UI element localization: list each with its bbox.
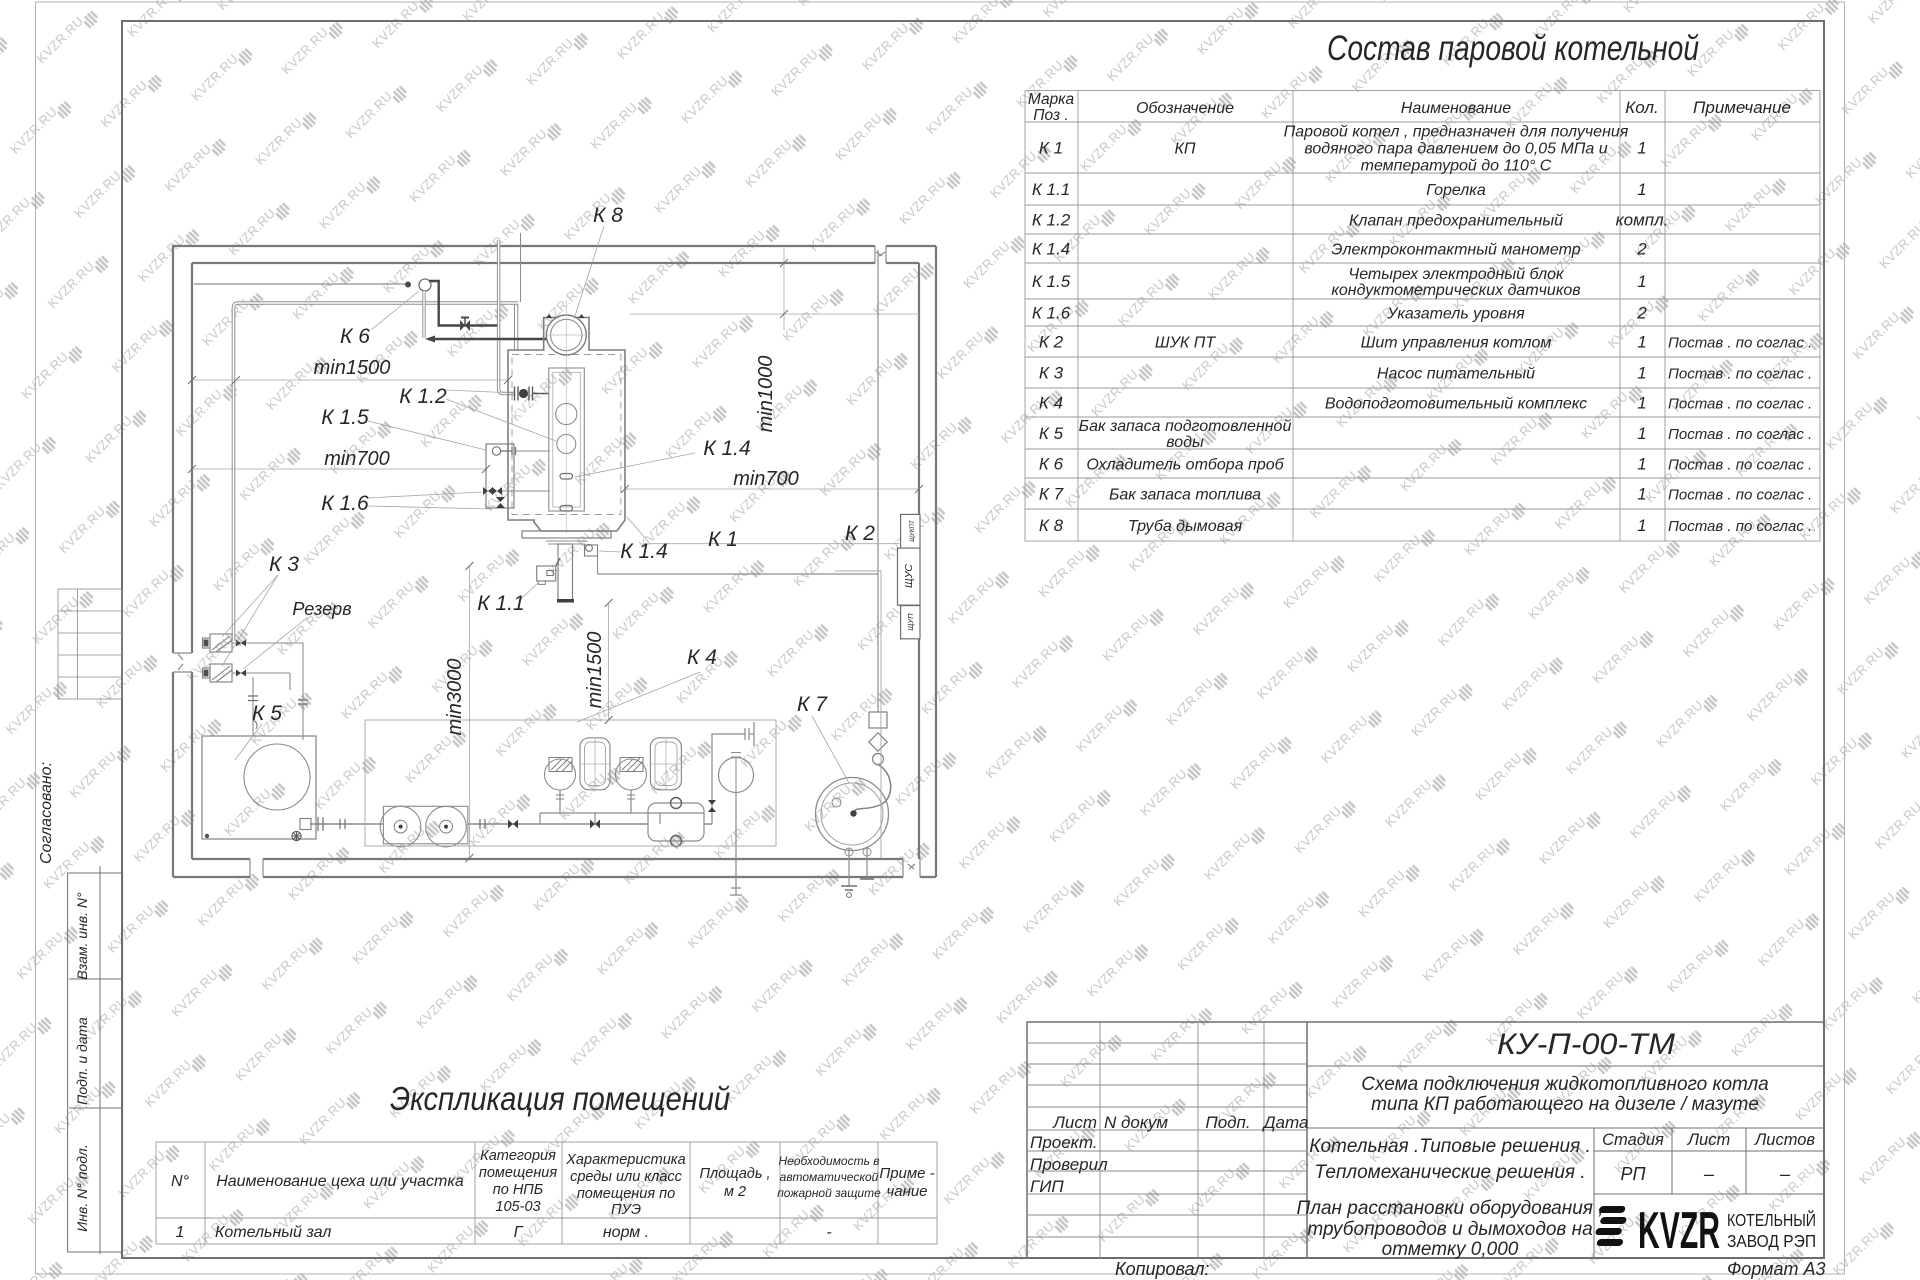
svg-text:Обозначение: Обозначение	[1136, 100, 1234, 117]
svg-text:2: 2	[1636, 240, 1647, 259]
svg-text:м 2: м 2	[724, 1184, 746, 1200]
svg-text:Экспликация помещений: Экспликация помещений	[390, 1080, 730, 1117]
svg-text:Согласовано:: Согласовано:	[38, 762, 55, 864]
svg-text:Бак запаса топлива: Бак запаса топлива	[1109, 487, 1261, 504]
svg-text:К 1.2: К 1.2	[1032, 211, 1071, 230]
svg-text:К 5: К 5	[1039, 424, 1064, 443]
svg-text:ЩУП: ЩУП	[906, 613, 915, 631]
svg-text:К 1.1: К 1.1	[477, 592, 524, 615]
svg-text:К 7: К 7	[797, 693, 828, 716]
svg-text:Котельный зал: Котельный зал	[215, 1224, 331, 1241]
svg-text:Кол.: Кол.	[1625, 98, 1658, 117]
svg-text:Постав . по соглас .: Постав . по соглас .	[1668, 335, 1812, 352]
svg-text:1: 1	[1637, 272, 1646, 291]
svg-text:1: 1	[1637, 485, 1646, 504]
svg-text:Паровой котел , предназначен д: Паровой котел , предназначен для получен…	[1284, 124, 1629, 141]
svg-text:Указатель уровня: Указатель уровня	[1386, 306, 1525, 323]
svg-text:-: -	[826, 1224, 831, 1241]
svg-text:помещения по: помещения по	[577, 1186, 675, 1202]
svg-text:Четырех электродный блок: Четырех электродный блок	[1348, 266, 1565, 283]
svg-text:норм .: норм .	[603, 1224, 649, 1241]
svg-text:компл.: компл.	[1616, 211, 1669, 230]
svg-text:min1500: min1500	[314, 357, 391, 379]
svg-text:Марка: Марка	[1028, 91, 1075, 108]
svg-text:отметку 0,000: отметку 0,000	[1382, 1239, 1519, 1260]
svg-text:Тепломеханические решения .: Тепломеханические решения .	[1314, 1162, 1585, 1183]
svg-text:Необходимость в: Необходимость в	[778, 1154, 879, 1168]
svg-text:К 1: К 1	[708, 528, 738, 551]
svg-text:К 6: К 6	[340, 325, 370, 348]
svg-text:среды или класс: среды или класс	[570, 1169, 683, 1185]
svg-text:К 1.4: К 1.4	[1032, 240, 1070, 259]
svg-text:Листов: Листов	[1754, 1131, 1815, 1149]
svg-text:К 1.4: К 1.4	[703, 437, 750, 460]
svg-text:Наименование цеха или участка: Наименование цеха или участка	[216, 1173, 464, 1190]
svg-text:К 1.5: К 1.5	[1032, 272, 1071, 291]
svg-text:Горелка: Горелка	[1426, 182, 1486, 199]
svg-text:1: 1	[1637, 180, 1646, 199]
svg-text:Стадия: Стадия	[1602, 1131, 1664, 1149]
svg-text:К 1.4: К 1.4	[620, 540, 667, 563]
svg-text:Схема подключения жидкотопливн: Схема подключения жидкотопливного котла	[1361, 1074, 1769, 1095]
svg-text:КП: КП	[1174, 141, 1195, 158]
svg-text:РП: РП	[1620, 1164, 1646, 1184]
svg-text:min700: min700	[324, 448, 390, 470]
svg-text:Лист: Лист	[1052, 1113, 1097, 1132]
svg-text:Постав . по соглас .: Постав . по соглас .	[1668, 457, 1812, 474]
svg-text:КОТЕЛЬНЫЙ: КОТЕЛЬНЫЙ	[1727, 1209, 1816, 1230]
svg-text:ЗАВОД РЭП: ЗАВОД РЭП	[1727, 1231, 1816, 1251]
svg-text:Состав паровой котельной: Состав паровой котельной	[1327, 29, 1699, 68]
svg-text:К 3: К 3	[1039, 364, 1064, 383]
svg-text:N°: N°	[171, 1173, 190, 1190]
svg-text:кондуктометрических датчиков: кондуктометрических датчиков	[1331, 282, 1580, 299]
svg-text:Проект.: Проект.	[1030, 1133, 1098, 1152]
svg-text:2: 2	[1636, 304, 1647, 323]
svg-text:Примечание: Примечание	[1693, 98, 1791, 117]
svg-text:Приме -: Приме -	[879, 1165, 934, 1182]
svg-text:ШУК ПТ: ШУК ПТ	[1155, 335, 1216, 352]
svg-text:К 1.5: К 1.5	[321, 406, 369, 429]
svg-text:температурой до 110° С: температурой до 110° С	[1361, 158, 1552, 175]
svg-text:К 4: К 4	[687, 646, 717, 669]
svg-text:Наименование: Наименование	[1401, 100, 1512, 117]
svg-text:К 7: К 7	[1039, 485, 1064, 504]
svg-text:1: 1	[1637, 516, 1646, 535]
svg-text:1: 1	[1637, 139, 1646, 158]
svg-text:чание: чание	[886, 1183, 927, 1200]
svg-text:ГИП: ГИП	[1030, 1177, 1064, 1196]
svg-text:Клапан предохранительный: Клапан предохранительный	[1349, 213, 1563, 230]
svg-text:К 2: К 2	[1039, 333, 1064, 352]
svg-text:План расстановки оборудования: План расстановки оборудования ,	[1297, 1198, 1604, 1219]
svg-text:1: 1	[1637, 455, 1646, 474]
svg-text:К 8: К 8	[593, 204, 623, 227]
svg-text:ЩУС: ЩУС	[903, 564, 915, 588]
svg-text:Копировал:: Копировал:	[1115, 1259, 1210, 1279]
svg-text:Г: Г	[514, 1224, 524, 1241]
svg-text:Бак запаса подготовленной: Бак запаса подготовленной	[1079, 418, 1292, 435]
svg-text:К 1.2: К 1.2	[399, 385, 447, 408]
svg-text:1: 1	[176, 1224, 185, 1241]
svg-text:Постав . по соглас .: Постав . по соглас .	[1668, 396, 1812, 413]
svg-text:К 1.1: К 1.1	[1032, 180, 1070, 199]
svg-text:Площадь ,: Площадь ,	[699, 1166, 770, 1182]
svg-text:Подп. и дата: Подп. и дата	[74, 1017, 90, 1105]
svg-text:Взам. инв. N°: Взам. инв. N°	[74, 892, 90, 980]
svg-text:ПУЭ: ПУЭ	[611, 1202, 641, 1218]
svg-text:Резерв: Резерв	[292, 599, 351, 619]
svg-text:воды: воды	[1166, 434, 1204, 451]
svg-text:К 5: К 5	[252, 702, 282, 725]
svg-text:водяного пара давлением до 0,: водяного пара давлением до 0,05 МПа и	[1304, 141, 1607, 158]
svg-text:1: 1	[1637, 424, 1646, 443]
svg-text:Подп.: Подп.	[1205, 1113, 1250, 1132]
svg-text:ЩУКПТ: ЩУКПТ	[909, 519, 916, 542]
svg-text:Проверил: Проверил	[1030, 1155, 1108, 1174]
svg-text:–: –	[1703, 1164, 1715, 1184]
svg-text:–: –	[1779, 1164, 1791, 1184]
svg-text:К 1: К 1	[1039, 139, 1063, 158]
svg-text:К 2: К 2	[845, 522, 875, 545]
svg-text:Котельная .Типовые решения .: Котельная .Типовые решения .	[1309, 1136, 1590, 1157]
svg-text:min1500: min1500	[584, 632, 606, 709]
svg-text:помещения: помещения	[479, 1165, 557, 1181]
svg-text:Поз .: Поз .	[1033, 107, 1069, 124]
svg-text:Лист: Лист	[1687, 1131, 1730, 1149]
svg-text:пожарной защите: пожарной защите	[777, 1186, 881, 1200]
svg-text:К 3: К 3	[269, 553, 299, 576]
svg-text:Инв. N° подл.: Инв. N° подл.	[74, 1144, 90, 1231]
svg-text:К 1.6: К 1.6	[321, 492, 369, 515]
svg-text:Шит управления котлом: Шит управления котлом	[1361, 335, 1552, 352]
svg-text:Электроконтактный манометр: Электроконтактный манометр	[1331, 242, 1580, 259]
svg-text:Труба дымовая: Труба дымовая	[1128, 518, 1243, 535]
svg-text:Постав . по соглас .: Постав . по соглас .	[1668, 426, 1812, 443]
svg-text:N докум: N докум	[1104, 1113, 1168, 1132]
svg-text:К 8: К 8	[1039, 516, 1064, 535]
svg-text:1: 1	[1637, 394, 1646, 413]
svg-text:min3000: min3000	[444, 659, 466, 736]
svg-text:Насос питательный: Насос питательный	[1377, 366, 1535, 383]
svg-text:Постав . по соглас .: Постав . по соглас .	[1668, 366, 1812, 383]
svg-text:Постав . по соглас .: Постав . по соглас .	[1668, 487, 1812, 504]
svg-text:Дата: Дата	[1262, 1113, 1309, 1132]
svg-text:К 1.6: К 1.6	[1032, 304, 1071, 323]
svg-text:Категория: Категория	[480, 1148, 556, 1164]
svg-text:КУ-П-00-ТМ: КУ-П-00-ТМ	[1497, 1028, 1675, 1061]
svg-text:по НПБ: по НПБ	[493, 1182, 544, 1198]
svg-text:типа КП работающего на дизеле: типа КП работающего на дизеле / мазуте	[1371, 1094, 1759, 1115]
svg-text:автоматической: автоматической	[780, 1170, 879, 1184]
svg-text:min700: min700	[733, 468, 799, 490]
svg-text:Водоподготовительный комплекс: Водоподготовительный комплекс	[1325, 396, 1587, 413]
svg-text:1: 1	[1637, 364, 1646, 383]
svg-text:1: 1	[1637, 333, 1646, 352]
svg-text:К 4: К 4	[1039, 394, 1063, 413]
svg-text:Характеристика: Характеристика	[565, 1152, 685, 1168]
svg-text:трубопроводов и дымоходов на: трубопроводов и дымоходов на	[1307, 1219, 1592, 1240]
svg-text:К 6: К 6	[1039, 455, 1064, 474]
svg-text:Формат А3: Формат А3	[1727, 1259, 1826, 1279]
svg-text:105-03: 105-03	[495, 1199, 540, 1215]
svg-text:Постав . по соглас .: Постав . по соглас .	[1668, 518, 1812, 535]
svg-text:KVZR: KVZR	[1638, 1202, 1720, 1260]
svg-text:min1000: min1000	[755, 356, 777, 433]
svg-text:Охладитель отбора проб: Охладитель отбора проб	[1086, 457, 1284, 474]
